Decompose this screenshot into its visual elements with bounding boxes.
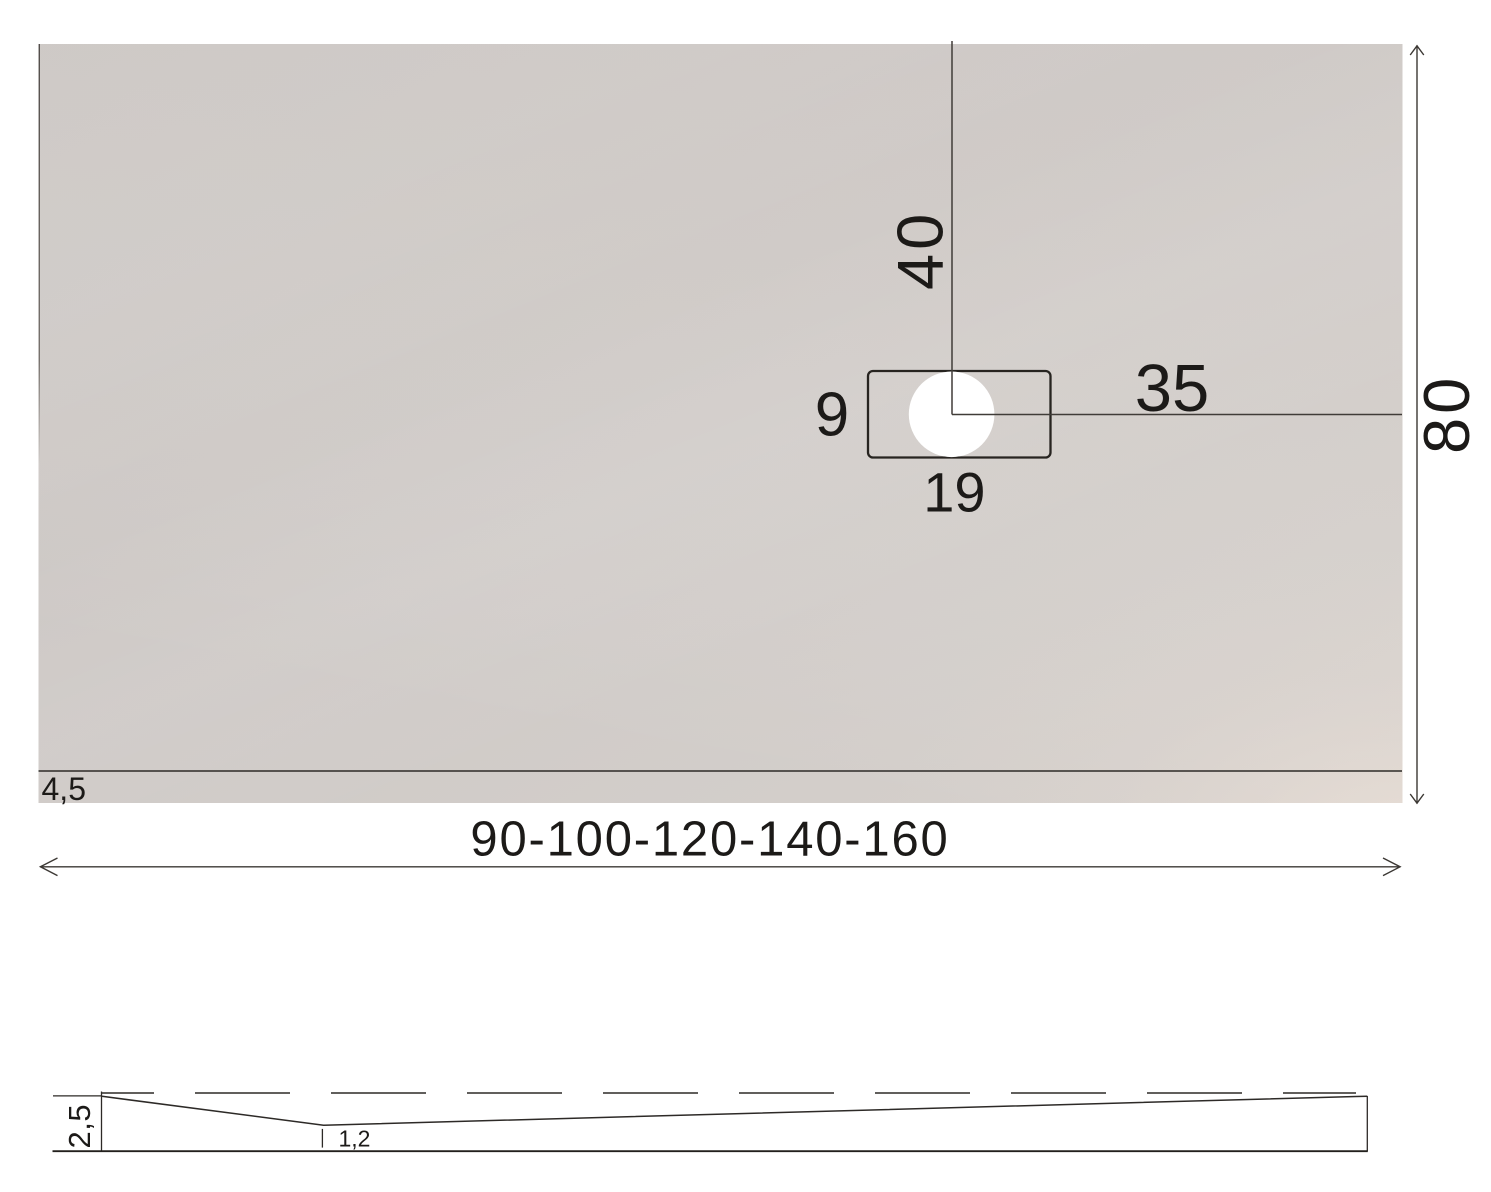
svg-text:90-100-120-140-160: 90-100-120-140-160 [470,813,949,867]
svg-text:80: 80 [1410,374,1483,454]
svg-text:9: 9 [815,381,849,450]
svg-text:40: 40 [884,210,957,290]
svg-text:35: 35 [1135,351,1210,426]
svg-text:4,5: 4,5 [42,771,86,807]
svg-text:19: 19 [923,461,985,524]
svg-text:2,5: 2,5 [62,1104,97,1149]
svg-text:1,2: 1,2 [339,1126,371,1152]
